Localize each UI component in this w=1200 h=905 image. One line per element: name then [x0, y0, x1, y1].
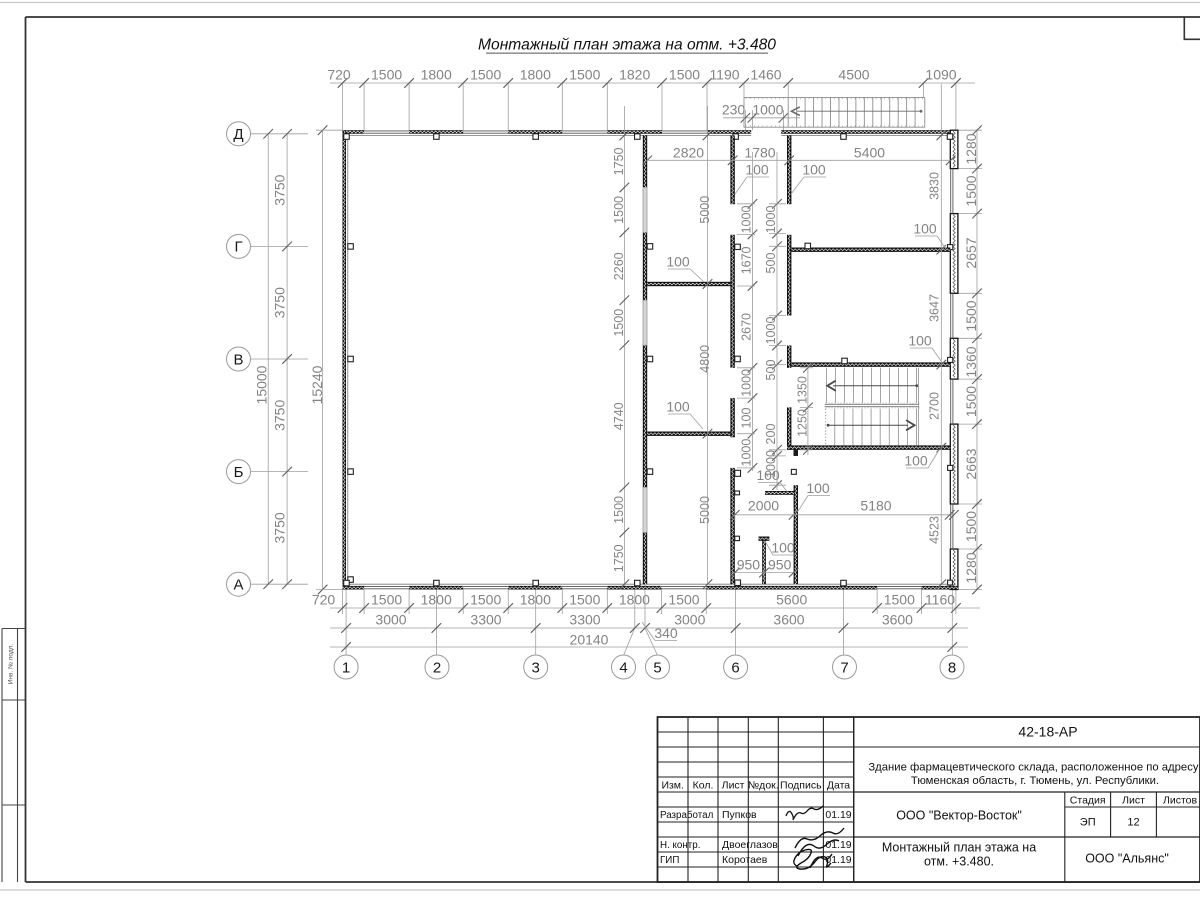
svg-text:3300: 3300 [470, 612, 501, 628]
svg-text:6: 6 [731, 659, 739, 676]
svg-text:Пупков: Пупков [722, 809, 757, 821]
svg-text:1500: 1500 [669, 67, 700, 83]
svg-text:100: 100 [771, 540, 795, 556]
svg-text:1780: 1780 [744, 145, 775, 161]
svg-text:3000: 3000 [375, 612, 406, 628]
svg-text:Инв. № подл.: Инв. № подл. [8, 644, 15, 685]
svg-text:1750: 1750 [612, 544, 626, 572]
svg-text:950: 950 [768, 557, 792, 573]
svg-text:100: 100 [913, 221, 937, 237]
svg-text:Н. контр.: Н. контр. [660, 840, 700, 851]
svg-text:2657: 2657 [963, 237, 979, 268]
svg-text:1800: 1800 [619, 592, 650, 608]
svg-text:3600: 3600 [773, 612, 804, 628]
svg-text:100: 100 [806, 480, 830, 496]
svg-text:Двоеглазов: Двоеглазов [722, 839, 778, 851]
svg-text:100: 100 [802, 162, 826, 178]
svg-text:100: 100 [756, 467, 780, 483]
svg-text:1800: 1800 [421, 67, 452, 83]
svg-text:3300: 3300 [569, 612, 600, 628]
svg-text:100: 100 [666, 399, 690, 415]
svg-text:1460: 1460 [750, 67, 781, 83]
svg-text:1190: 1190 [709, 67, 739, 83]
svg-text:5180: 5180 [860, 498, 891, 514]
svg-text:1350: 1350 [796, 376, 810, 404]
svg-text:2700: 2700 [928, 392, 942, 420]
svg-text:Листов: Листов [1163, 795, 1198, 807]
svg-text:4523: 4523 [928, 516, 942, 544]
svg-text:950: 950 [737, 557, 761, 573]
svg-text:200: 200 [764, 424, 778, 445]
svg-text:Здание фармацевтического склад: Здание фармацевтического склада, располо… [868, 762, 1200, 774]
svg-text:1: 1 [342, 659, 350, 676]
svg-text:1800: 1800 [421, 592, 452, 608]
svg-text:5000: 5000 [698, 496, 712, 524]
svg-text:Коротаев: Коротаев [722, 854, 768, 866]
svg-text:7: 7 [840, 659, 848, 676]
svg-text:1500: 1500 [470, 67, 501, 83]
svg-text:1360: 1360 [963, 346, 979, 377]
svg-text:1500: 1500 [963, 175, 979, 206]
svg-text:15240: 15240 [309, 365, 325, 404]
svg-text:5: 5 [653, 659, 661, 676]
svg-text:720: 720 [327, 67, 351, 83]
svg-text:Г: Г [234, 239, 242, 256]
svg-text:А: А [233, 577, 243, 594]
svg-text:2820: 2820 [673, 145, 704, 161]
svg-text:1000: 1000 [740, 439, 754, 467]
svg-text:8: 8 [948, 659, 956, 676]
svg-text:1000: 1000 [764, 206, 778, 234]
svg-text:3750: 3750 [272, 287, 288, 318]
svg-text:01.19: 01.19 [825, 809, 851, 821]
svg-text:3600: 3600 [882, 612, 913, 628]
svg-text:1500: 1500 [612, 309, 626, 337]
svg-text:1160: 1160 [925, 592, 955, 608]
svg-text:2663: 2663 [963, 448, 979, 479]
svg-text:42-18-АР: 42-18-АР [1018, 724, 1077, 740]
svg-text:Лист: Лист [1122, 795, 1145, 807]
svg-text:1500: 1500 [963, 386, 979, 417]
svg-text:1820: 1820 [619, 67, 650, 83]
svg-text:1800: 1800 [520, 67, 551, 83]
svg-text:1500: 1500 [884, 592, 915, 608]
svg-text:Разработал: Разработал [660, 810, 714, 821]
svg-text:1250: 1250 [796, 409, 810, 437]
svg-text:12: 12 [1127, 817, 1139, 829]
svg-text:1000: 1000 [764, 317, 778, 345]
svg-text:230: 230 [722, 102, 746, 118]
svg-text:1500: 1500 [668, 592, 699, 608]
svg-text:Подпись: Подпись [780, 779, 822, 791]
svg-text:340: 340 [654, 625, 678, 641]
svg-text:2000: 2000 [748, 498, 779, 514]
svg-text:Б: Б [234, 464, 244, 481]
svg-text:1500: 1500 [963, 511, 979, 542]
svg-text:3750: 3750 [272, 512, 288, 543]
svg-text:1500: 1500 [371, 592, 402, 608]
svg-text:2670: 2670 [740, 313, 754, 341]
svg-text:1280: 1280 [963, 133, 979, 164]
svg-text:5600: 5600 [776, 592, 807, 608]
svg-text:Лист: Лист [722, 779, 745, 791]
svg-text:1800: 1800 [520, 592, 551, 608]
svg-text:100: 100 [904, 453, 928, 469]
svg-text:ООО "Альянс": ООО "Альянс" [1085, 852, 1169, 866]
svg-text:3830: 3830 [928, 172, 942, 200]
svg-text:720: 720 [312, 592, 336, 608]
svg-text:Кол.: Кол. [693, 779, 714, 791]
svg-text:1280: 1280 [963, 552, 979, 583]
svg-text:3647: 3647 [928, 294, 942, 322]
svg-text:1500: 1500 [612, 196, 626, 224]
svg-text:Монтажный план этажа на: Монтажный план этажа на [882, 841, 1036, 855]
svg-text:5400: 5400 [854, 145, 885, 161]
svg-text:Монтажный план этажа на отм. +: Монтажный план этажа на отм. +3.480 [478, 37, 776, 54]
svg-text:1000: 1000 [752, 102, 783, 118]
svg-text:В: В [233, 351, 243, 368]
svg-text:1500: 1500 [963, 300, 979, 331]
svg-text:ООО "Вектор-Восток": ООО "Вектор-Восток" [896, 809, 1022, 823]
svg-text:1090: 1090 [925, 67, 956, 83]
svg-text:Тюменская область, г. Тюмень,: Тюменская область, г. Тюмень, ул. Респуб… [911, 775, 1159, 787]
svg-text:№док.: №док. [748, 779, 779, 791]
svg-text:1670: 1670 [740, 246, 754, 274]
svg-text:500: 500 [764, 360, 778, 381]
svg-text:2: 2 [433, 659, 441, 676]
svg-text:1500: 1500 [612, 496, 626, 524]
svg-text:500: 500 [764, 253, 778, 274]
svg-text:1500: 1500 [569, 592, 600, 608]
svg-text:100: 100 [908, 333, 932, 349]
svg-text:100: 100 [740, 408, 754, 429]
svg-text:3000: 3000 [674, 612, 705, 628]
svg-text:20140: 20140 [570, 632, 609, 648]
svg-text:Дата: Дата [827, 779, 850, 791]
svg-text:15000: 15000 [253, 365, 269, 404]
svg-text:4: 4 [619, 659, 627, 676]
svg-text:Изм.: Изм. [661, 779, 684, 791]
svg-text:5000: 5000 [698, 196, 712, 224]
svg-text:Стадия: Стадия [1070, 795, 1106, 807]
svg-text:1500: 1500 [569, 67, 600, 83]
svg-text:1000: 1000 [740, 206, 754, 234]
svg-text:1000: 1000 [740, 369, 754, 397]
svg-text:3750: 3750 [272, 174, 288, 205]
svg-text:отм. +3.480.: отм. +3.480. [924, 855, 994, 869]
svg-text:4500: 4500 [838, 67, 869, 83]
svg-text:3750: 3750 [272, 400, 288, 431]
svg-text:Д: Д [233, 126, 243, 143]
svg-text:2260: 2260 [612, 252, 626, 280]
svg-text:ЭП: ЭП [1080, 817, 1096, 829]
svg-text:ГИП: ГИП [660, 855, 679, 866]
svg-text:100: 100 [666, 254, 690, 270]
svg-text:4800: 4800 [698, 345, 712, 373]
svg-text:4740: 4740 [612, 402, 626, 430]
svg-text:1500: 1500 [371, 67, 402, 83]
svg-text:1500: 1500 [470, 592, 501, 608]
svg-text:1750: 1750 [612, 147, 626, 175]
svg-text:100: 100 [745, 162, 769, 178]
svg-text:3: 3 [532, 659, 540, 676]
